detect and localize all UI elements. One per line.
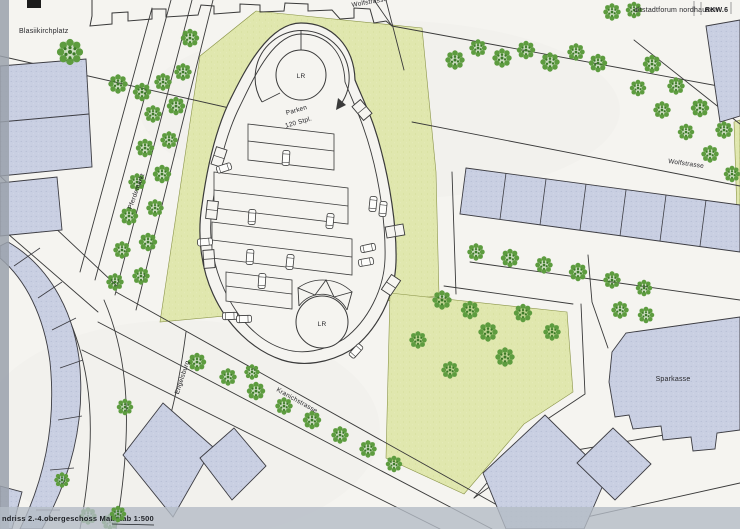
car-icon bbox=[248, 209, 256, 224]
tree-icon bbox=[57, 39, 83, 65]
car-icon bbox=[222, 312, 237, 320]
tree-icon bbox=[467, 243, 484, 260]
tree-icon bbox=[638, 307, 654, 323]
car-icon bbox=[369, 196, 378, 212]
tree-icon bbox=[445, 50, 464, 69]
tree-icon bbox=[409, 331, 426, 348]
tree-icon bbox=[653, 101, 670, 118]
tree-icon bbox=[501, 249, 519, 267]
tree-icon bbox=[691, 99, 709, 117]
tree-icon bbox=[461, 301, 479, 319]
car-icon bbox=[236, 315, 251, 323]
tree-icon bbox=[517, 41, 535, 59]
tree-icon bbox=[132, 267, 149, 284]
tree-icon bbox=[643, 55, 661, 73]
tree-icon bbox=[113, 241, 130, 258]
tree-icon bbox=[535, 256, 552, 273]
tree-icon bbox=[495, 347, 514, 366]
tree-icon bbox=[589, 54, 607, 72]
tree-icon bbox=[181, 29, 199, 47]
label-ramp-bottom: LR bbox=[318, 321, 327, 328]
stair-core bbox=[203, 250, 215, 269]
car-icon bbox=[258, 273, 266, 288]
label-blasiikirchplatz: Blasiikirchplatz bbox=[19, 28, 69, 35]
tree-icon bbox=[219, 368, 236, 385]
tree-icon bbox=[174, 63, 191, 80]
scan-mark-top-left bbox=[27, 0, 41, 8]
tree-icon bbox=[167, 97, 185, 115]
car-icon bbox=[379, 201, 388, 217]
tree-icon bbox=[724, 166, 740, 182]
tree-icon bbox=[139, 233, 157, 251]
tree-icon bbox=[569, 263, 587, 281]
tree-icon bbox=[701, 145, 718, 162]
scan-edge-left bbox=[0, 0, 9, 529]
tree-icon bbox=[432, 290, 451, 309]
building-topleft-small bbox=[0, 177, 62, 236]
tree-icon bbox=[630, 80, 646, 96]
tree-icon bbox=[133, 83, 151, 101]
tree-icon bbox=[478, 322, 497, 341]
tree-icon bbox=[611, 301, 628, 318]
car-icon bbox=[326, 213, 335, 229]
tree-icon bbox=[136, 139, 154, 157]
tree-icon bbox=[244, 364, 260, 380]
tree-icon bbox=[144, 105, 161, 122]
tree-icon bbox=[678, 124, 694, 140]
tree-icon bbox=[540, 52, 559, 71]
tree-icon bbox=[303, 411, 321, 429]
tree-icon bbox=[715, 121, 732, 138]
car-icon bbox=[197, 238, 213, 246]
tree-icon bbox=[106, 273, 123, 290]
tree-icon bbox=[117, 399, 133, 415]
scanned-site-plan-page: Blasiikirchplatz Wolfstrasse Wolfstrasse… bbox=[0, 0, 740, 529]
tree-icon bbox=[108, 74, 127, 93]
tree-icon bbox=[636, 280, 652, 296]
tree-icon bbox=[146, 199, 163, 216]
car-icon bbox=[246, 249, 254, 264]
tree-icon bbox=[492, 48, 511, 67]
drawing-caption: ndriss 2.-4.obergeschoss Maßstab 1:500 bbox=[2, 514, 154, 523]
tree-icon bbox=[153, 165, 171, 183]
car-icon bbox=[286, 254, 295, 270]
site-plan-map: Blasiikirchplatz Wolfstrasse Wolfstrasse… bbox=[0, 0, 740, 529]
car-icon bbox=[282, 150, 290, 165]
tree-icon bbox=[543, 323, 560, 340]
tree-icon bbox=[386, 456, 402, 472]
tree-icon bbox=[54, 472, 70, 488]
tree-icon bbox=[667, 77, 684, 94]
tree-icon bbox=[603, 271, 620, 288]
tree-icon bbox=[603, 3, 620, 20]
tree-icon bbox=[247, 382, 265, 400]
tree-icon bbox=[567, 43, 584, 60]
title-sheet-number: RKW.6 bbox=[705, 7, 728, 14]
stair-core bbox=[206, 200, 219, 219]
tree-icon bbox=[331, 426, 348, 443]
tree-icon bbox=[469, 39, 486, 56]
tree-icon bbox=[160, 131, 177, 148]
label-ramp-top: LR bbox=[297, 73, 306, 80]
tree-icon bbox=[441, 361, 458, 378]
label-sparkasse: Sparkasse bbox=[656, 376, 691, 383]
tree-icon bbox=[359, 440, 376, 457]
tree-icon bbox=[514, 304, 532, 322]
tree-icon bbox=[154, 73, 171, 90]
tree-icon bbox=[110, 506, 126, 522]
